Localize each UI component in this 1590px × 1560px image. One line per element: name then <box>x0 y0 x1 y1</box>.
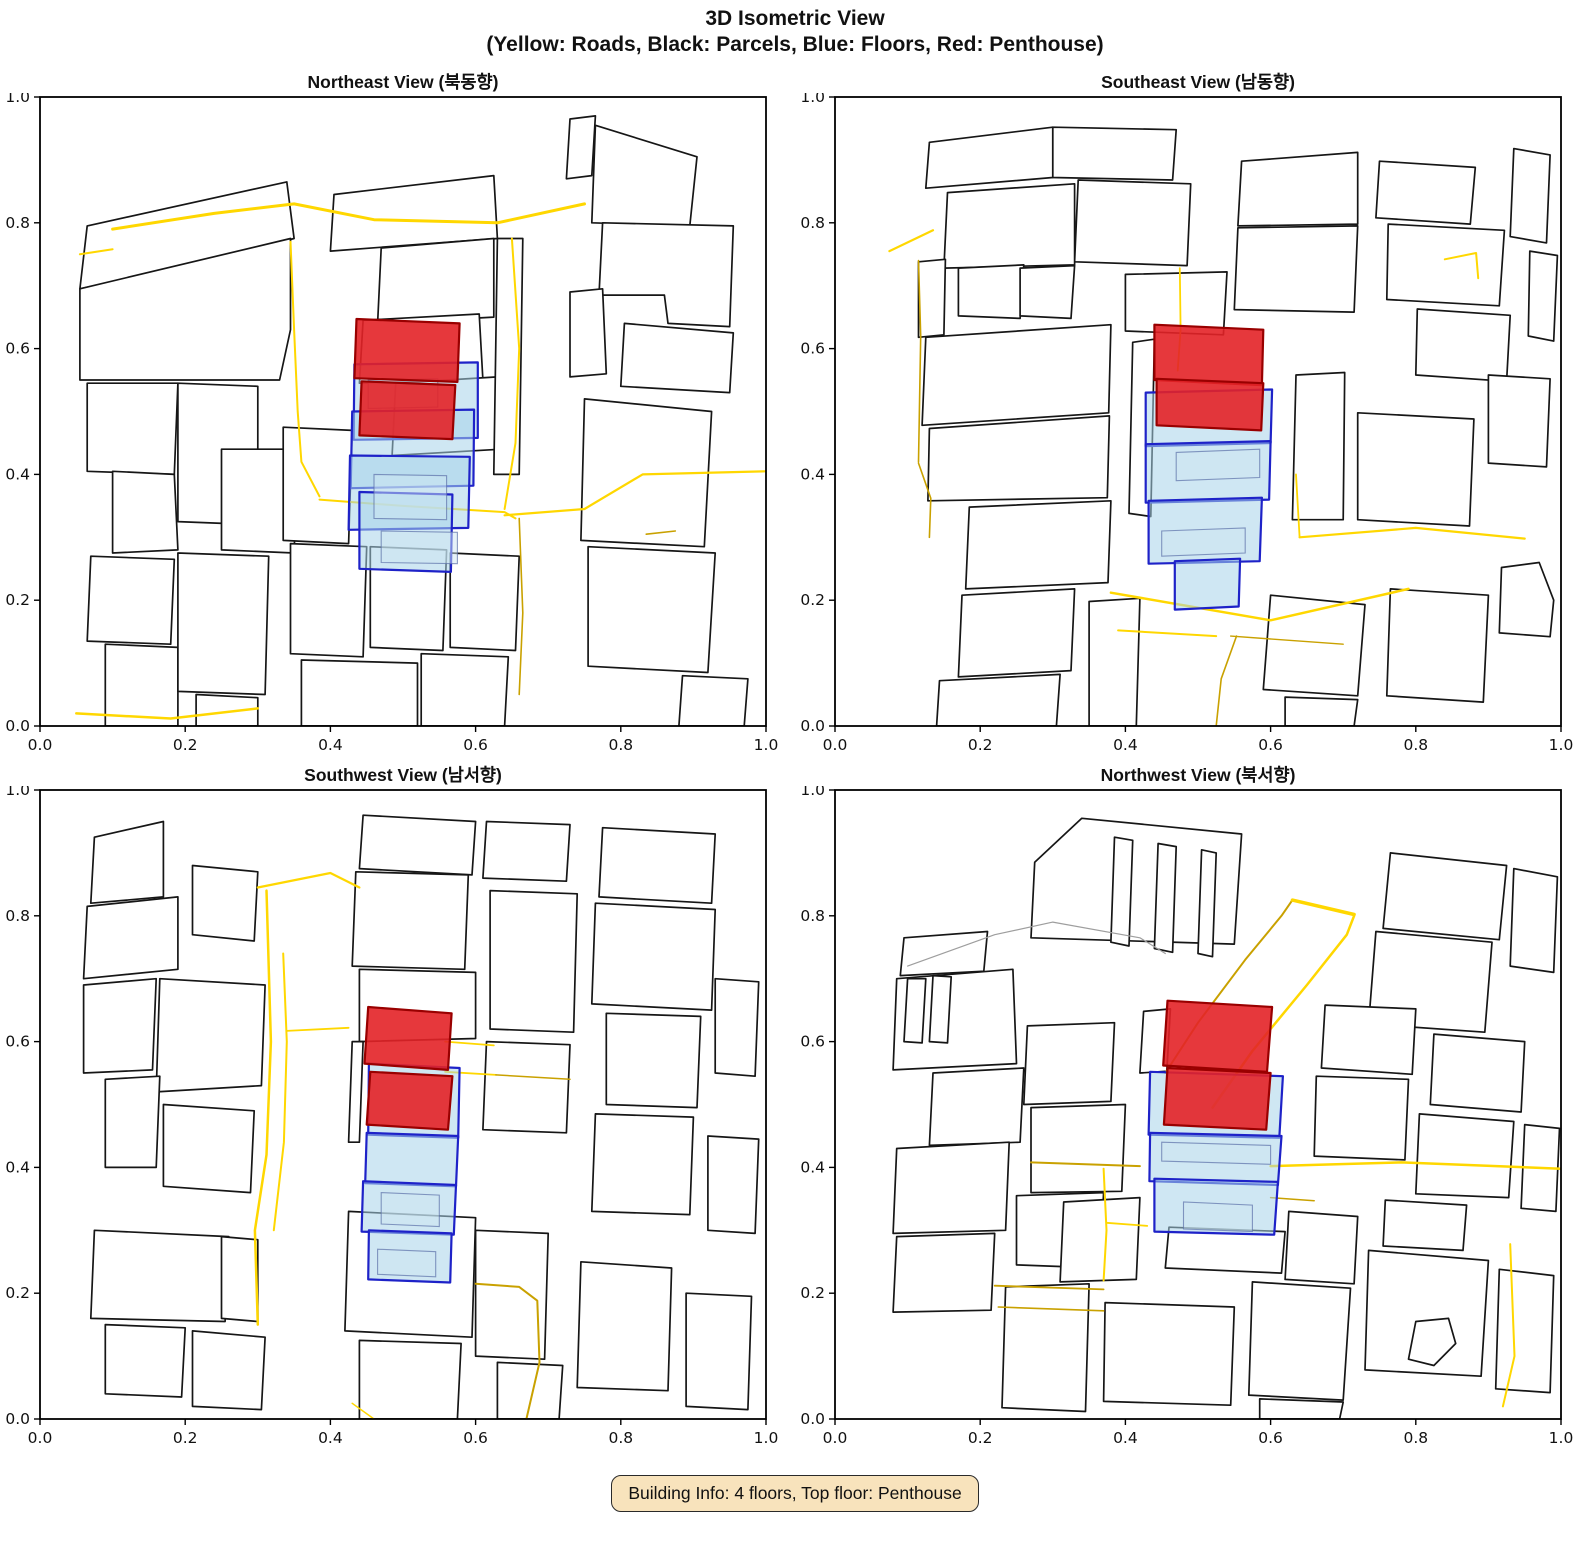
svg-text:0.6: 0.6 <box>800 1032 825 1050</box>
isometric-plot-southeast: 0.00.20.40.60.81.00.00.20.40.60.81.0 <box>795 93 1590 752</box>
subplot-northeast: Northeast View (북동향) 0.00.20.40.60.81.00… <box>0 59 795 752</box>
svg-text:1.0: 1.0 <box>1549 736 1574 752</box>
svg-text:1.0: 1.0 <box>5 786 30 799</box>
svg-text:0.4: 0.4 <box>800 1158 825 1176</box>
figure-footer: Building Info: 4 floors, Top floor: Pent… <box>0 1475 1590 1526</box>
svg-text:0.4: 0.4 <box>1113 1429 1138 1445</box>
figure-subtitle: (Yellow: Roads, Black: Parcels, Blue: Fl… <box>0 32 1590 58</box>
svg-text:0.8: 0.8 <box>1403 1429 1428 1445</box>
svg-text:0.8: 0.8 <box>5 906 30 924</box>
svg-text:0.8: 0.8 <box>608 1429 633 1445</box>
isometric-plot-southwest: 0.00.20.40.60.81.00.00.20.40.60.81.0 <box>0 786 795 1445</box>
svg-text:0.2: 0.2 <box>800 591 825 609</box>
svg-text:0.2: 0.2 <box>968 736 993 752</box>
svg-text:0.4: 0.4 <box>318 736 343 752</box>
subplot-grid: Northeast View (북동향) 0.00.20.40.60.81.00… <box>0 59 1590 1445</box>
svg-text:0.8: 0.8 <box>5 213 30 231</box>
svg-text:1.0: 1.0 <box>800 93 825 106</box>
svg-text:0.0: 0.0 <box>5 1410 30 1428</box>
svg-text:0.6: 0.6 <box>1258 1429 1283 1445</box>
svg-text:0.2: 0.2 <box>5 591 30 609</box>
svg-text:0.2: 0.2 <box>968 1429 993 1445</box>
svg-text:0.6: 0.6 <box>5 1032 30 1050</box>
svg-text:1.0: 1.0 <box>800 786 825 799</box>
svg-text:0.4: 0.4 <box>318 1429 343 1445</box>
svg-text:0.4: 0.4 <box>1113 736 1138 752</box>
subplot-southwest: Southwest View (남서향) 0.00.20.40.60.81.00… <box>0 752 795 1445</box>
subplot-southeast: Southeast View (남동향) 0.00.20.40.60.81.00… <box>795 59 1590 752</box>
figure-title: 3D Isometric View <box>0 6 1590 32</box>
svg-text:0.8: 0.8 <box>800 213 825 231</box>
svg-text:0.6: 0.6 <box>5 339 30 357</box>
svg-text:0.0: 0.0 <box>5 717 30 735</box>
svg-text:0.0: 0.0 <box>28 736 53 752</box>
svg-text:0.0: 0.0 <box>28 1429 53 1445</box>
svg-text:0.6: 0.6 <box>463 736 488 752</box>
svg-text:0.4: 0.4 <box>5 1158 30 1176</box>
isometric-plot-northwest: 0.00.20.40.60.81.00.00.20.40.60.81.0 <box>795 786 1590 1445</box>
svg-text:1.0: 1.0 <box>754 1429 779 1445</box>
svg-text:0.4: 0.4 <box>800 465 825 483</box>
svg-text:0.8: 0.8 <box>608 736 633 752</box>
subplot-title-southeast: Southeast View (남동향) <box>835 69 1561 91</box>
svg-text:1.0: 1.0 <box>754 736 779 752</box>
subplot-title-northeast: Northeast View (북동향) <box>40 69 766 91</box>
svg-text:0.0: 0.0 <box>800 1410 825 1428</box>
svg-text:0.8: 0.8 <box>1403 736 1428 752</box>
svg-text:0.0: 0.0 <box>800 717 825 735</box>
subplot-title-southwest: Southwest View (남서향) <box>40 762 766 784</box>
svg-text:0.6: 0.6 <box>463 1429 488 1445</box>
figure-header: 3D Isometric View (Yellow: Roads, Black:… <box>0 0 1590 59</box>
svg-text:1.0: 1.0 <box>5 93 30 106</box>
subplot-northwest: Northwest View (북서향) 0.00.20.40.60.81.00… <box>795 752 1590 1445</box>
building-info-box: Building Info: 4 floors, Top floor: Pent… <box>611 1475 978 1512</box>
svg-text:0.2: 0.2 <box>5 1284 30 1302</box>
svg-text:0.6: 0.6 <box>800 339 825 357</box>
svg-text:0.0: 0.0 <box>823 736 848 752</box>
svg-text:0.2: 0.2 <box>173 1429 198 1445</box>
svg-text:1.0: 1.0 <box>1549 1429 1574 1445</box>
svg-text:0.0: 0.0 <box>823 1429 848 1445</box>
svg-text:0.2: 0.2 <box>800 1284 825 1302</box>
svg-text:0.6: 0.6 <box>1258 736 1283 752</box>
subplot-title-northwest: Northwest View (북서향) <box>835 762 1561 784</box>
svg-text:0.2: 0.2 <box>173 736 198 752</box>
isometric-plot-northeast: 0.00.20.40.60.81.00.00.20.40.60.81.0 <box>0 93 795 752</box>
figure: 3D Isometric View (Yellow: Roads, Black:… <box>0 0 1590 1526</box>
svg-text:0.8: 0.8 <box>800 906 825 924</box>
svg-text:0.4: 0.4 <box>5 465 30 483</box>
